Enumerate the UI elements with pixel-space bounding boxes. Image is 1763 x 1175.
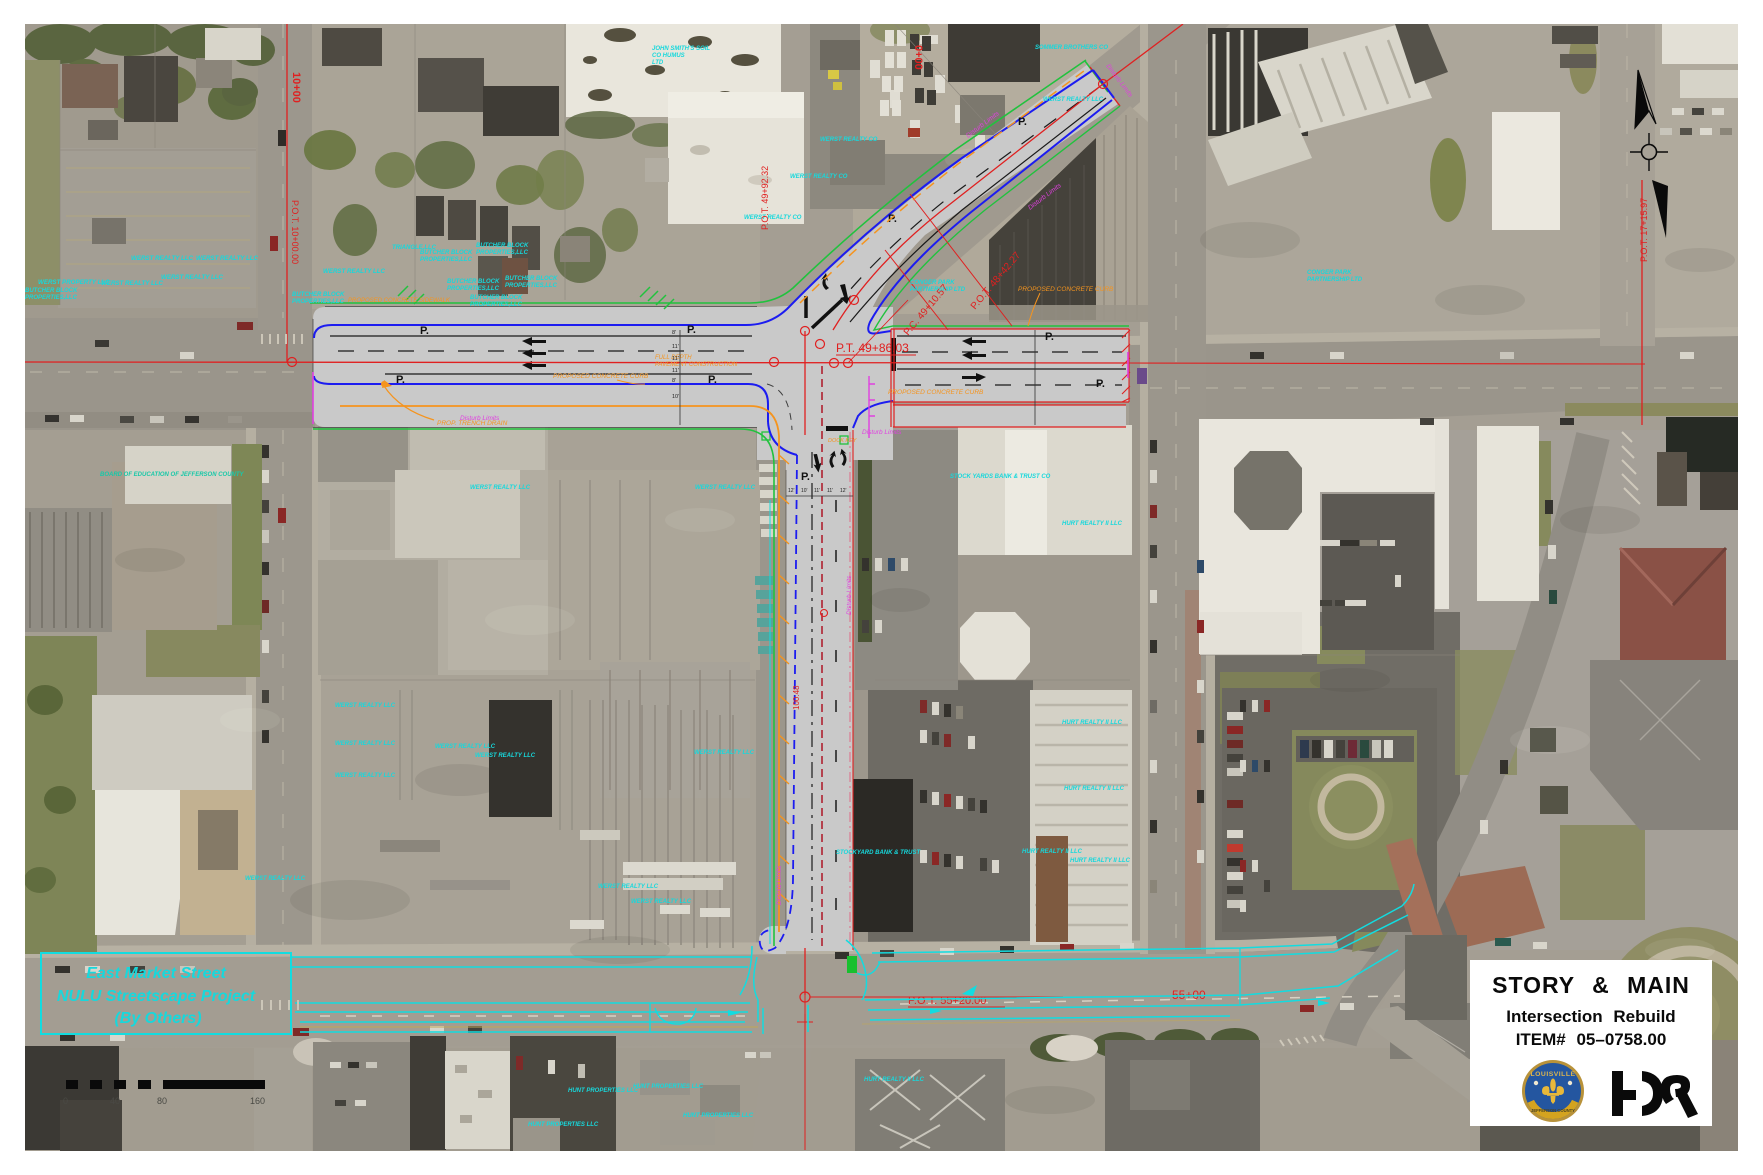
svg-text:HUNT PROPERTIES LLC: HUNT PROPERTIES LLC	[528, 1122, 599, 1128]
svg-text:PAVEMENT CONSTRUCTION: PAVEMENT CONSTRUCTION	[655, 362, 738, 368]
svg-text:12': 12'	[788, 488, 795, 494]
svg-text:CONGER PARK: CONGER PARK	[910, 280, 955, 286]
svg-text:(By Others): (By Others)	[114, 1010, 201, 1027]
svg-text:BUTCHER BLOCK: BUTCHER BLOCK	[476, 243, 529, 249]
svg-text:PROPERTIES,LLC: PROPERTIES,LLC	[476, 250, 529, 256]
svg-text:11': 11'	[672, 368, 679, 374]
svg-text:P.O.T. 10+00.00: P.O.T. 10+00.00	[290, 200, 300, 264]
svg-text:WERST REALTY LLC: WERST REALTY LLC	[161, 274, 224, 281]
svg-text:CONGER PARK: CONGER PARK	[1307, 270, 1352, 276]
svg-text:WERST REALTY LLC: WERST REALTY LLC	[475, 753, 536, 759]
svg-text:ITEM# 05–0758.00: ITEM# 05–0758.00	[1516, 1030, 1667, 1049]
svg-text:BUTCHER BLOCK: BUTCHER BLOCK	[25, 288, 78, 294]
svg-text:11': 11'	[672, 356, 679, 362]
svg-text:WERST PROPERTY LLC: WERST PROPERTY LLC	[38, 279, 110, 286]
svg-text:P.: P.	[1096, 378, 1105, 390]
svg-text:BUTCHER BLOCK: BUTCHER BLOCK	[447, 279, 500, 285]
svg-text:HURT REALTY II LLC: HURT REALTY II LLC	[1022, 849, 1083, 855]
svg-text:WERST REALTY LLC: WERST REALTY LLC	[196, 255, 259, 262]
svg-text:P.: P.	[801, 471, 810, 483]
svg-text:WERST REALTY LLC: WERST REALTY LLC	[631, 899, 692, 905]
svg-text:PROPERTIES,LLC: PROPERTIES,LLC	[25, 295, 78, 301]
svg-text:12': 12'	[840, 488, 847, 494]
svg-text:PROPERTIES,LLC: PROPERTIES,LLC	[447, 286, 500, 292]
svg-text:WERST REALTY LLC: WERST REALTY LLC	[335, 741, 396, 747]
svg-text:JOHN SMITH'S SOIL: JOHN SMITH'S SOIL	[652, 46, 710, 52]
svg-text:LOUISVILLE: LOUISVILLE	[1530, 1071, 1575, 1078]
svg-text:HURT REALTY II LLC: HURT REALTY II LLC	[864, 1077, 925, 1083]
svg-text:10': 10'	[801, 488, 808, 494]
svg-text:HUNT PROPERTIES LLC: HUNT PROPERTIES LLC	[683, 1113, 754, 1119]
svg-text:SOMMER BROTHERS CO: SOMMER BROTHERS CO	[1035, 45, 1108, 51]
svg-text:WERST REALTY CO: WERST REALTY CO	[820, 137, 878, 143]
svg-text:P.: P.	[1045, 331, 1054, 343]
svg-text:11': 11'	[672, 344, 679, 350]
svg-text:STORY & MAIN: STORY & MAIN	[1492, 972, 1690, 998]
svg-text:PROPERTIES,LLC: PROPERTIES,LLC	[292, 299, 345, 305]
svg-text:HURT REALTY II LLC: HURT REALTY II LLC	[1064, 786, 1125, 792]
svg-text:WERST REALTY LLC: WERST REALTY LLC	[245, 876, 306, 882]
svg-text:PROPERTIES,LLC: PROPERTIES,LLC	[420, 257, 473, 263]
svg-text:HUNT PROPERTIES LLC: HUNT PROPERTIES LLC	[633, 1084, 704, 1090]
svg-text:PROPOSED CONCRETE CURB: PROPOSED CONCRETE CURB	[553, 373, 649, 380]
svg-text:BUTCHER BLOCK: BUTCHER BLOCK	[470, 295, 523, 301]
svg-text:JEFFERSON COUNTY: JEFFERSON COUNTY	[1531, 1108, 1575, 1113]
svg-text:WERST REALTY LLC: WERST REALTY LLC	[335, 773, 396, 779]
svg-text:P.: P.	[708, 374, 717, 386]
svg-text:PROPERTIES,LLC: PROPERTIES,LLC	[505, 283, 558, 289]
svg-text:PROPOSED CONCRETE CURB: PROPOSED CONCRETE CURB	[888, 389, 984, 396]
svg-text:NULU Streetscape Project: NULU Streetscape Project	[57, 988, 256, 1005]
svg-text:BUTCHER BLOCK: BUTCHER BLOCK	[505, 276, 558, 282]
svg-text:P.T. 49+86.03: P.T. 49+86.03	[836, 341, 909, 355]
svg-text:CO HUMUS: CO HUMUS	[652, 53, 685, 59]
svg-text:80: 80	[157, 1096, 167, 1106]
svg-text:BOARD OF EDUCATION OF JEFFERSO: BOARD OF EDUCATION OF JEFFERSON COUNTY	[100, 472, 245, 478]
svg-text:P.O.T. 49+92.32: P.O.T. 49+92.32	[760, 166, 770, 230]
svg-text:BUTCHER BLOCK: BUTCHER BLOCK	[292, 292, 345, 298]
svg-text:P.: P.	[1018, 116, 1027, 128]
svg-text:100.48: 100.48	[792, 685, 801, 710]
svg-text:P.: P.	[687, 324, 696, 336]
svg-text:WERST REALTY LLC: WERST REALTY LLC	[101, 280, 164, 287]
svg-text:WERST REALTY LLC: WERST REALTY LLC	[598, 884, 659, 890]
svg-text:STOCK YARDS BANK & TRUST CO: STOCK YARDS BANK & TRUST CO	[950, 474, 1051, 480]
svg-text:BUTCHER BLOCK: BUTCHER BLOCK	[420, 250, 473, 256]
svg-text:0+00: 0+00	[912, 45, 924, 70]
svg-text:8': 8'	[672, 330, 676, 336]
svg-text:11': 11'	[814, 488, 820, 494]
svg-text:Disturb Limits: Disturb Limits	[460, 415, 500, 422]
svg-text:PROPOSED CONCRETE SIDEWALK: PROPOSED CONCRETE SIDEWALK	[348, 298, 451, 304]
svg-text:0: 0	[63, 1096, 68, 1106]
svg-text:LTD: LTD	[652, 60, 664, 66]
svg-text:HUNT PROPERTIES LLC: HUNT PROPERTIES LLC	[568, 1088, 639, 1094]
svg-text:WERST REALTY LLC: WERST REALTY LLC	[435, 744, 496, 750]
svg-text:WERST REALTY LLC: WERST REALTY LLC	[1043, 97, 1104, 103]
svg-text:HURT REALTY II LLC: HURT REALTY II LLC	[1070, 858, 1131, 864]
svg-text:P.: P.	[888, 213, 897, 225]
svg-text:WERST REALTY CO: WERST REALTY CO	[790, 174, 848, 180]
svg-text:WERST REALTY CO: WERST REALTY CO	[744, 215, 802, 221]
svg-text:11': 11'	[827, 488, 833, 494]
svg-text:Disturb Limits: Disturb Limits	[776, 865, 783, 905]
svg-text:WERST REALTY LLC: WERST REALTY LLC	[470, 485, 531, 491]
svg-text:40: 40	[110, 1096, 120, 1106]
svg-text:PROPERTIES,LLC: PROPERTIES,LLC	[470, 302, 523, 308]
svg-text:DOCK KEY: DOCK KEY	[828, 438, 857, 444]
svg-text:East Market Street: East Market Street	[86, 965, 226, 982]
svg-text:Disturb Limits: Disturb Limits	[862, 429, 902, 436]
svg-text:HURT REALTY II LLC: HURT REALTY II LLC	[1062, 521, 1123, 527]
svg-text:Intersection Rebuild: Intersection Rebuild	[1506, 1007, 1675, 1026]
svg-text:WERST REALTY LLC: WERST REALTY LLC	[694, 750, 755, 756]
svg-text:PARTNERSHIP LTD: PARTNERSHIP LTD	[1307, 277, 1363, 283]
svg-text:P.: P.	[420, 325, 429, 337]
svg-text:P.: P.	[396, 374, 405, 386]
svg-text:HURT REALTY II LLC: HURT REALTY II LLC	[1062, 720, 1123, 726]
svg-text:WERST REALTY LLC: WERST REALTY LLC	[335, 703, 396, 709]
svg-text:10+00: 10+00	[290, 72, 302, 103]
svg-text:10': 10'	[672, 394, 679, 400]
svg-text:STOCKYARD BANK & TRUST: STOCKYARD BANK & TRUST	[836, 850, 921, 856]
svg-text:Disturb Limits: Disturb Limits	[846, 575, 853, 615]
svg-text:8': 8'	[672, 378, 676, 384]
svg-text:P.O.T. 17+15.97: P.O.T. 17+15.97	[1639, 198, 1649, 262]
svg-text:P.O.T. 55+20.00: P.O.T. 55+20.00	[908, 995, 986, 1007]
svg-text:160: 160	[250, 1096, 265, 1106]
svg-text:PROPOSED CONCRETE CURB: PROPOSED CONCRETE CURB	[1018, 286, 1114, 293]
svg-text:WERST REALTY LLC: WERST REALTY LLC	[131, 255, 194, 262]
svg-text:WERST REALTY LLC: WERST REALTY LLC	[695, 485, 756, 491]
svg-text:WERST REALTY LLC: WERST REALTY LLC	[323, 268, 386, 275]
